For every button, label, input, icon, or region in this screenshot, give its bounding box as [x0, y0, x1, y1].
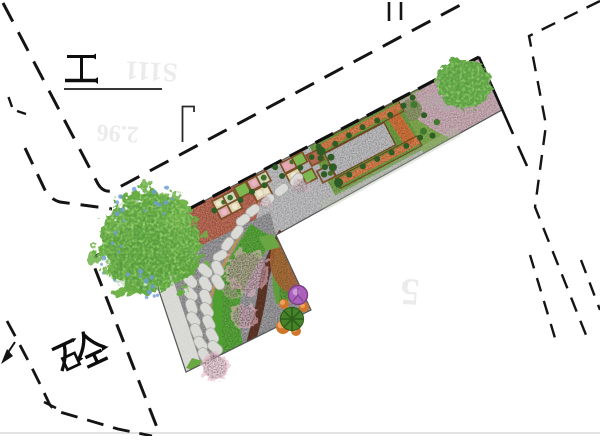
svg-text:2.96: 2.96: [96, 119, 139, 147]
svg-text:5: 5: [399, 270, 420, 313]
svg-text:S111: S111: [124, 55, 178, 88]
